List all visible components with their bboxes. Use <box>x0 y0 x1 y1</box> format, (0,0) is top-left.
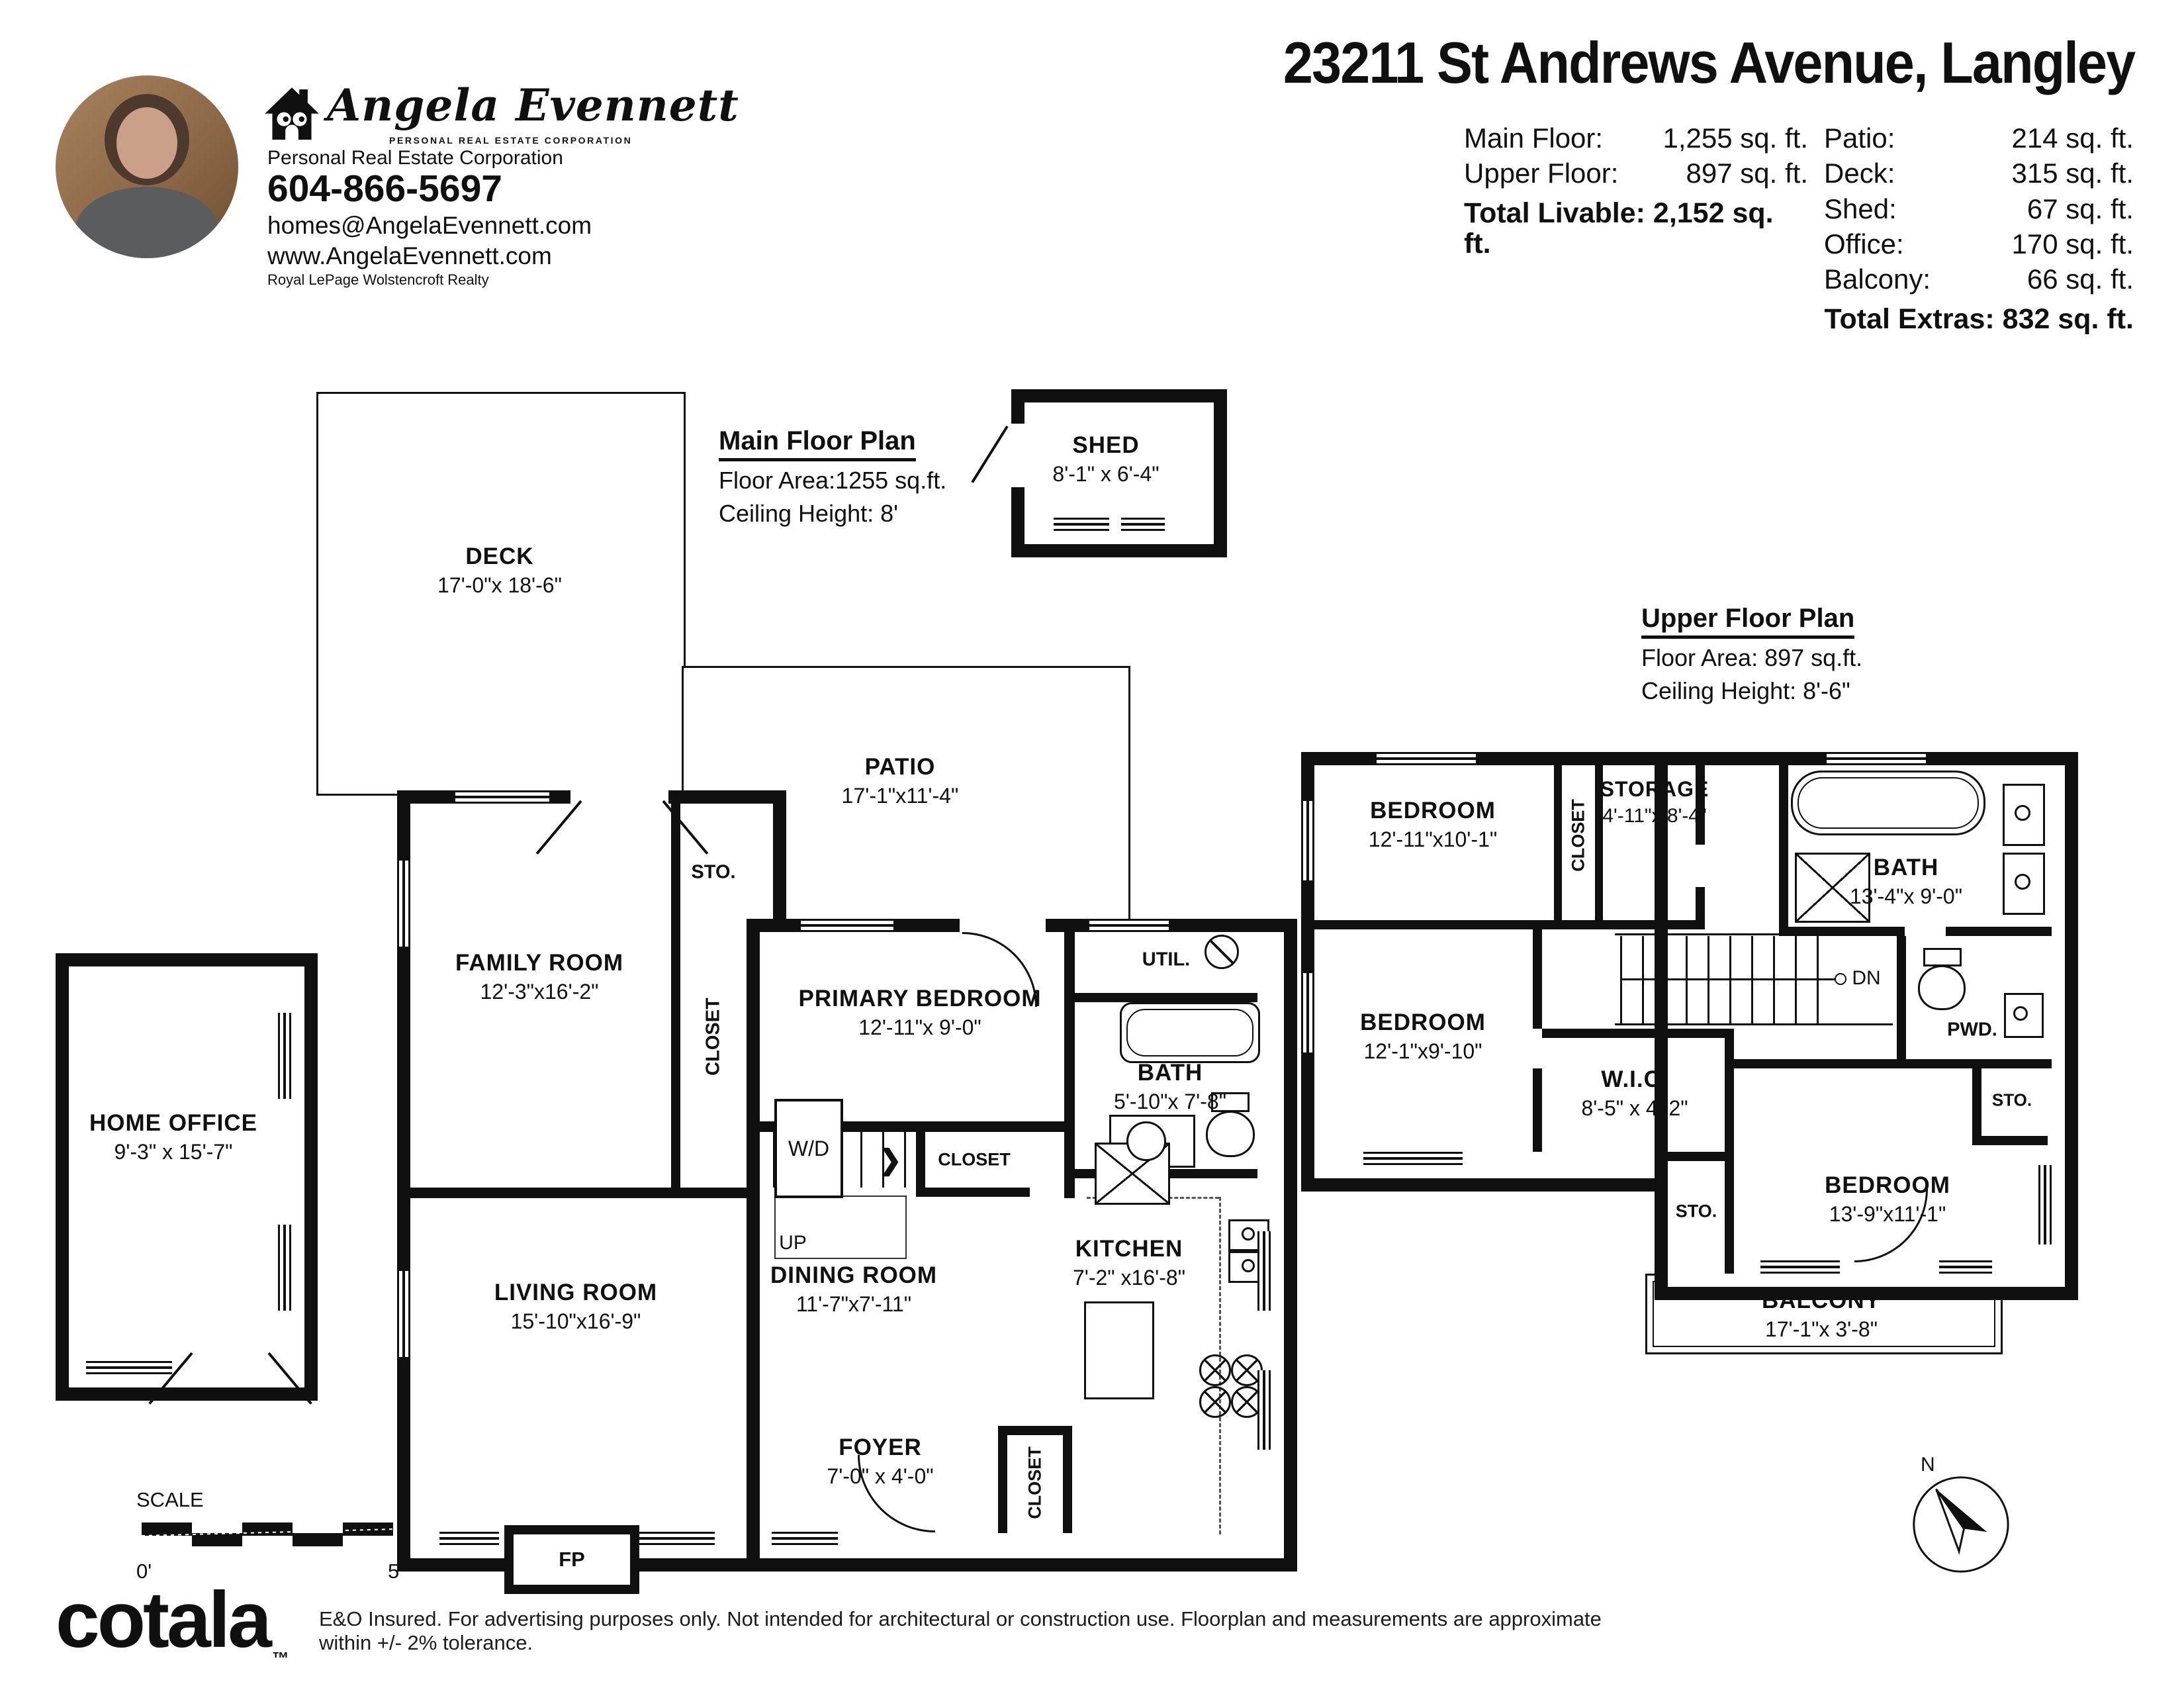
room-label-bedroom2: BEDROOM 12'-1"x9'-10" <box>1360 1009 1486 1064</box>
room-label-bath-upper: BATH 13'-4"x 9'-0" <box>1850 855 1962 909</box>
room-dims: 12'-3"x16'-2" <box>455 980 623 1004</box>
living-room-window <box>439 1532 499 1545</box>
wall-storage-right <box>1696 887 1705 929</box>
agent-photo-body <box>75 187 218 258</box>
wall-bedroom1-bottom <box>1314 920 1554 929</box>
sink-drain <box>2015 805 2030 821</box>
upper-plan-floor-area: Floor Area: 897 sq.ft. <box>1641 644 1862 672</box>
room-dims: 11'-7"x7'-11" <box>770 1292 937 1317</box>
bedroom3-window <box>1760 1260 1840 1274</box>
brand-script-name: Angela Evennett <box>327 79 739 131</box>
bath-window <box>1827 752 1926 765</box>
room-name: BEDROOM <box>1369 798 1497 824</box>
sink-drain <box>2013 1006 2028 1021</box>
bathtub-inner <box>1797 777 1979 829</box>
brand-tagline: PERSONAL REAL ESTATE CORPORATION <box>389 135 632 146</box>
agent-phone: 604-866-5697 <box>267 167 502 211</box>
shed-window <box>1121 518 1165 531</box>
room-label-foyer-closet: CLOSET <box>1025 1446 1046 1519</box>
room-dims: 17'-0"x 18'-6" <box>437 573 562 598</box>
kitchen-window <box>1257 1370 1271 1450</box>
room-name: PRIMARY BEDROOM <box>799 986 1042 1012</box>
family-room-window <box>397 861 410 947</box>
wall-bedroom3-left <box>1725 1059 1734 1274</box>
primary-bedroom-window <box>801 919 893 932</box>
room-dims: 15'-10"x16'-9" <box>494 1309 657 1334</box>
room-label-balcony: BALCONY 17'-1"x 3'-8" <box>1762 1288 1881 1342</box>
room-label-family-room: FAMILY ROOM 12'-3"x16'-2" <box>455 950 623 1004</box>
stat-row: Patio: 214 sq. ft. <box>1824 123 2134 153</box>
stat-value: 66 sq. ft. <box>2027 264 2134 294</box>
shed-door-opening <box>1011 424 1024 487</box>
room-label-primary-bedroom: PRIMARY BEDROOM 12'-11"x 9'-0" <box>799 986 1042 1040</box>
balcony-door-opening <box>1853 1260 1926 1274</box>
main-floor-left-block <box>397 790 786 1571</box>
wall-bedroom2-right <box>1533 929 1542 1029</box>
stat-label: Patio: <box>1824 123 1895 153</box>
trademark-symbol: ™ <box>272 1648 289 1668</box>
wall-foyer-closet-left <box>998 1426 1007 1533</box>
room-dims: 12'-11"x10'-1" <box>1369 827 1497 852</box>
powder-toilet-tank <box>1923 948 1962 966</box>
wall-bedroom-bath <box>1064 932 1075 1198</box>
room-label-foyer: FOYER 7'-0" x 4'-0" <box>827 1434 933 1489</box>
room-label-bath: BATH 5'-10"x 7'-8" <box>1114 1060 1226 1114</box>
room-dims: 17'-1"x11'-4" <box>842 784 959 808</box>
toilet-bowl <box>1206 1111 1255 1157</box>
stat-label: Shed: <box>1824 194 1897 224</box>
upper-plan-title: Upper Floor Plan <box>1641 604 1854 639</box>
room-dims: 12'-11"x 9'-0" <box>799 1015 1042 1040</box>
room-label-bedroom3: BEDROOM 13'-9"x11'-1" <box>1825 1172 1950 1227</box>
room-label-patio: PATIO 17'-1"x11'-4" <box>842 754 959 808</box>
room-dims: 8'-1" x 6'-4" <box>1052 462 1159 487</box>
room-label-living-room: LIVING ROOM 15'-10"x16'-9" <box>494 1280 657 1334</box>
wall-sto-right <box>1972 1068 1981 1145</box>
washer-dryer-box: W/D <box>774 1099 843 1198</box>
family-room-window <box>455 790 549 804</box>
stat-label: Upper Floor: <box>1464 158 1618 188</box>
stat-row: Upper Floor: 897 sq. ft. <box>1464 158 1808 188</box>
listing-title-text: 23211 St Andrews Avenue, Langley <box>1283 29 2134 97</box>
room-name: LIVING ROOM <box>494 1280 657 1306</box>
wall-sto-left-top <box>1668 1152 1734 1161</box>
utility-fixture-icon <box>1205 935 1239 969</box>
room-label-wic: W.I.C. 8'-5" x 4'-2" <box>1581 1066 1688 1121</box>
room-dims: 5'-10"x 7'-8" <box>1114 1090 1226 1114</box>
listing-title: 23211 St Andrews Avenue, Langley <box>1046 29 2134 97</box>
agent-photo-face <box>116 107 177 179</box>
scale-bar-icon <box>142 1513 393 1556</box>
room-label-stairs-closet: CLOSET <box>938 1150 1011 1170</box>
stat-row: Main Floor: 1,255 sq. ft. <box>1464 123 1808 153</box>
stat-value: 897 sq. ft. <box>1686 158 1808 188</box>
bedroom3-window <box>1939 1260 1992 1274</box>
room-label-powder: PWD. <box>1947 1019 1997 1041</box>
agent-designation: Personal Real Estate Corporation <box>267 147 563 169</box>
room-name: BATH <box>1114 1060 1226 1086</box>
kitchen-sink-drain <box>1242 1259 1255 1272</box>
room-name: FOYER <box>827 1434 933 1461</box>
wall-closet-left <box>1554 765 1562 929</box>
total-livable: Total Livable: 2,152 sq. ft. <box>1464 198 1808 259</box>
cotala-logo-text: cotala <box>56 1575 269 1664</box>
agent-email: homes@AngelaEvennett.com <box>267 212 592 240</box>
stairs-dn-top-line <box>1615 933 1893 935</box>
room-label-dining-room: DINING ROOM 11'-7"x7'-11" <box>770 1262 937 1317</box>
room-label-storage: STO. <box>691 862 735 884</box>
agent-brokerage: Royal LePage Wolstencroft Realty <box>267 271 489 289</box>
upper-plan-ceiling: Ceiling Height: 8'-6" <box>1641 677 1862 705</box>
wall-bedroom2-right <box>1533 1068 1542 1152</box>
extras-area-summary: Patio: 214 sq. ft. Deck: 315 sq. ft. She… <box>1824 123 2134 334</box>
stairs-up-label: UP <box>779 1232 807 1254</box>
stove-burner-icon <box>1199 1354 1231 1386</box>
home-office-window <box>278 1225 291 1311</box>
room-label-utility: UTIL. <box>1142 949 1191 971</box>
shed-window <box>1054 518 1109 531</box>
wall-storage-strip <box>671 804 680 1188</box>
room-label-sto-right: STO. <box>1992 1090 2032 1111</box>
stat-row: Deck: 315 sq. ft. <box>1824 158 2134 188</box>
stairs-rail-post <box>1835 973 1846 985</box>
front-door-opening <box>855 1532 933 1545</box>
main-plan-floor-area: Floor Area:1255 sq.ft. <box>719 467 946 494</box>
room-dims: 8'-5" x 4'-2" <box>1581 1096 1688 1121</box>
room-name: HOME OFFICE <box>89 1110 257 1137</box>
foyer-window <box>772 1532 838 1545</box>
room-dims: 13'-9"x11'-1" <box>1825 1202 1950 1227</box>
room-name: BATH <box>1850 855 1962 881</box>
kitchen-sink-drain <box>1242 1227 1255 1241</box>
stat-row: Office: 170 sq. ft. <box>1824 229 2134 259</box>
disclaimer-text: E&O Insured. For advertising purposes on… <box>319 1607 1656 1655</box>
deck-door-opening <box>570 790 668 804</box>
stat-value: 214 sq. ft. <box>2012 123 2134 153</box>
stat-label: Balcony: <box>1824 264 1931 294</box>
room-name: DECK <box>437 543 562 570</box>
stairs-dn-treads <box>1620 936 1820 1023</box>
room-name: BEDROOM <box>1825 1172 1950 1199</box>
room-label-shed: SHED 8'-1" x 6'-4" <box>1052 432 1159 487</box>
stat-label: Deck: <box>1824 158 1895 188</box>
upper-floor-plan-heading: Upper Floor Plan Floor Area: 897 sq.ft. … <box>1641 604 1862 705</box>
room-label-home-office: HOME OFFICE 9'-3" x 15'-7" <box>89 1110 257 1164</box>
stat-value: 315 sq. ft. <box>2012 158 2134 188</box>
wall-util-bath <box>1075 993 1257 1002</box>
room-dims: 7'-2" x16'-8" <box>1073 1266 1185 1290</box>
house-logo-icon <box>262 85 322 144</box>
floorplan-page: Angela Evennett PERSONAL REAL ESTATE COR… <box>0 0 2184 1688</box>
living-room-window <box>397 1271 410 1357</box>
room-label-deck: DECK 17'-0"x 18'-6" <box>437 543 562 598</box>
bathtub <box>1120 1002 1260 1063</box>
washer-dryer-label: W/D <box>788 1137 829 1161</box>
stairs-dn-bottom-line <box>1615 1023 1893 1025</box>
room-name: BALCONY <box>1762 1288 1881 1314</box>
room-name: W.I.C. <box>1581 1066 1688 1093</box>
stat-label: Main Floor: <box>1464 123 1603 153</box>
room-name: KITCHEN <box>1073 1236 1185 1262</box>
cotala-logo: cotala™ <box>56 1574 287 1665</box>
home-office-door-opening <box>187 1361 273 1374</box>
main-plan-ceiling: Ceiling Height: 8' <box>719 500 946 528</box>
room-dims: 13'-4"x 9'-0" <box>1850 884 1962 909</box>
room-label-bedroom1: BEDROOM 12'-11"x10'-1" <box>1369 798 1497 852</box>
living-room-window <box>627 1532 715 1545</box>
compass-north-label: N <box>1921 1454 1935 1476</box>
wall-storage-bottom <box>1554 920 1704 929</box>
wall-foyer-closet-top <box>998 1426 1072 1435</box>
wall-foyer-closet-right <box>1063 1426 1072 1533</box>
stairs-arrow-icon: ❯ <box>878 1144 901 1176</box>
room-label-upper-closet: CLOSET <box>1569 799 1589 872</box>
stat-value: 1,255 sq. ft. <box>1663 123 1808 153</box>
room-dims: 12'-1"x9'-10" <box>1360 1039 1486 1064</box>
wall-bath-left <box>1779 765 1788 929</box>
room-dims: 7'-0" x 4'-0" <box>827 1464 933 1489</box>
stat-label: Office: <box>1824 229 1904 259</box>
fireplace-box: FP <box>504 1525 639 1594</box>
wall-powder-left <box>1897 936 1906 1062</box>
total-extras: Total Extras: 832 sq. ft. <box>1824 304 2134 334</box>
bedroom3-window <box>2038 1165 2052 1244</box>
wall-sto-right-bottom <box>1972 1136 2048 1145</box>
room-name: BEDROOM <box>1360 1009 1486 1036</box>
main-plan-title: Main Floor Plan <box>719 426 916 461</box>
room-dims: 4'-11"x 8'-4" <box>1600 805 1709 827</box>
patio-door-opening <box>960 919 1046 932</box>
fireplace-label: FP <box>559 1548 585 1571</box>
room-label-kitchen: KITCHEN 7'-2" x16'-8" <box>1073 1236 1185 1290</box>
wall-bedroom3-top <box>1734 1059 2052 1068</box>
livable-area-summary: Main Floor: 1,255 sq. ft. Upper Floor: 8… <box>1464 123 1808 259</box>
room-name: FAMILY ROOM <box>455 950 623 976</box>
home-office-window <box>86 1361 172 1374</box>
room-name: SHED <box>1052 432 1159 459</box>
bedroom1-window <box>1377 752 1476 765</box>
wall-wic-top <box>1542 1029 1734 1038</box>
room-name: PATIO <box>842 754 959 780</box>
bedroom2-window <box>1301 973 1314 1053</box>
stat-value: 170 sq. ft. <box>2012 229 2134 259</box>
sink-drain <box>2015 874 2030 890</box>
stove-burner-icon <box>1199 1386 1231 1418</box>
room-dims: 17'-1"x 3'-8" <box>1762 1317 1881 1342</box>
powder-toilet-bowl <box>1918 965 1966 1010</box>
stat-value: 67 sq. ft. <box>2027 194 2134 224</box>
kitchen-window <box>1257 1231 1271 1311</box>
main-floor-plan-heading: Main Floor Plan Floor Area:1255 sq.ft. C… <box>719 426 946 528</box>
agent-photo <box>56 75 238 258</box>
bathtub-upper <box>1791 771 1985 835</box>
bedroom1-window <box>1301 801 1314 880</box>
stat-row: Shed: 67 sq. ft. <box>1824 194 2134 224</box>
bathtub-inner <box>1126 1009 1253 1056</box>
room-name: STORAGE <box>1600 777 1709 802</box>
wall-bath-bottom <box>1946 927 2052 936</box>
bathroom-sink <box>1126 1121 1166 1161</box>
wall-stairs-closet-bottom <box>916 1188 1030 1197</box>
kitchen-island <box>1084 1301 1154 1399</box>
room-label-sto-left: STO. <box>1676 1201 1717 1222</box>
utility-window <box>1089 919 1169 932</box>
room-dims: 9'-3" x 15'-7" <box>89 1140 257 1164</box>
bedroom2-window <box>1363 1152 1463 1165</box>
stairs-dn-label: DN <box>1852 967 1880 990</box>
agent-website: www.AngelaEvennett.com <box>267 242 552 270</box>
home-office-window <box>278 1013 291 1099</box>
wall-family-living <box>410 1188 747 1198</box>
room-name: DINING ROOM <box>770 1262 937 1289</box>
shed-door-leaf <box>971 426 1008 483</box>
room-label-storage-upper: STORAGE 4'-11"x 8'-4" <box>1600 777 1709 827</box>
stat-row: Balcony: 66 sq. ft. <box>1824 264 2134 294</box>
room-label-hall-closet: CLOSET <box>703 998 725 1076</box>
scale-label: SCALE <box>136 1488 204 1512</box>
compass-icon <box>1903 1467 2015 1578</box>
